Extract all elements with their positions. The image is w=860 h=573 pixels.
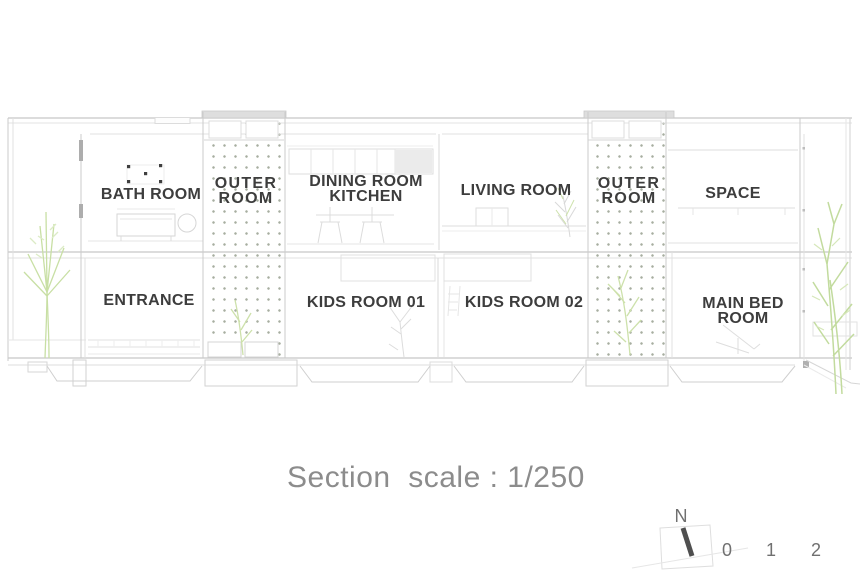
- entrance-steps: [88, 340, 200, 354]
- room-label-kids-room-01: KIDS ROOM 01: [307, 295, 425, 310]
- room-label-main-bed-room: MAIN BED ROOM: [685, 296, 802, 326]
- section-drawing: BATH ROOM OUTER ROOM DINING ROOM KITCHEN…: [0, 0, 860, 573]
- bedroom-lounge-chair: [716, 325, 760, 354]
- outer-room-openings: [204, 121, 666, 357]
- compass-needle: [683, 528, 692, 556]
- room-label-outer-room-2: OUTER ROOM: [598, 176, 661, 206]
- bathtub: [117, 214, 175, 236]
- kids-room-plant: [389, 305, 413, 357]
- room-label-dining-room-kitchen: DINING ROOM KITCHEN: [309, 174, 423, 204]
- room-label-entrance: ENTRANCE: [103, 293, 194, 308]
- outer-room-plants: [231, 270, 641, 355]
- space-furniture: [678, 208, 795, 215]
- shower-dot: [144, 172, 147, 175]
- shower-dot: [127, 180, 130, 183]
- compass-north-label: N: [675, 506, 688, 527]
- range-hood: [395, 150, 432, 173]
- kitchen-cabinets: [287, 146, 433, 174]
- room-label-living-room: LIVING ROOM: [461, 183, 572, 198]
- kids-room-ladder: [448, 286, 460, 316]
- shower-dot: [159, 180, 162, 183]
- shower-dot: [127, 165, 130, 168]
- roof-lines: [8, 111, 852, 124]
- room-label-outer-room-1: OUTER ROOM: [215, 176, 278, 206]
- right-tree: [812, 202, 854, 394]
- kids-room-01-bulkhead: [341, 255, 435, 281]
- scale-tick-label-0: 0: [722, 540, 732, 561]
- room-label-space: SPACE: [705, 186, 760, 201]
- dining-furniture: [316, 207, 394, 243]
- outer-room-1-footing: [205, 360, 297, 386]
- scale-tick-label-2: 2: [811, 540, 821, 561]
- room-label-bath-room: BATH ROOM: [101, 187, 201, 202]
- roof-vent: [155, 118, 190, 124]
- outer-room-2-footing: [586, 360, 668, 386]
- scale-tick-label-1: 1: [766, 540, 776, 561]
- washbasin: [178, 214, 196, 232]
- outer-room-1-cap: [202, 111, 286, 118]
- section-scale-caption: Section scale : 1/250: [287, 461, 585, 495]
- outer-room-2-cap: [584, 111, 674, 118]
- room-label-kids-room-02: KIDS ROOM 02: [465, 295, 583, 310]
- left-tree: [24, 212, 70, 358]
- shower-dot: [159, 164, 162, 167]
